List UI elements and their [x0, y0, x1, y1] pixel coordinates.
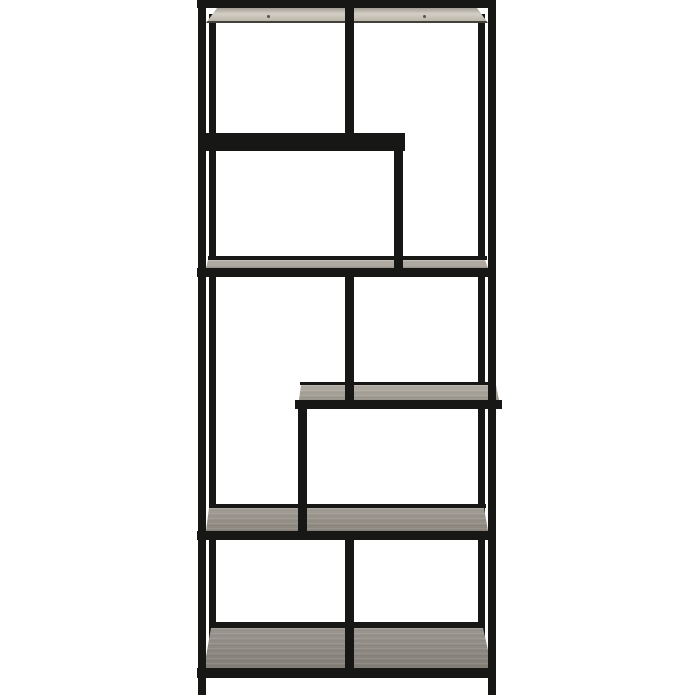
half-shelf-surface [299, 385, 499, 400]
middle-center-post [345, 277, 354, 404]
half-shelf-back-edge [300, 382, 495, 385]
second-shelf-surface [206, 260, 488, 268]
upper-left-shelf-right-post [394, 149, 403, 271]
right-rear-leg [478, 14, 485, 672]
third-shelf-surface [206, 508, 488, 531]
upper-center-post [345, 6, 354, 145]
upper-left-shelf-frame [202, 133, 405, 151]
second-shelf-back-edge [208, 256, 487, 260]
screw-head-left [267, 15, 270, 18]
half-shelf-left-post [298, 409, 307, 536]
left-rear-leg [209, 14, 216, 672]
half-shelf-front-bar [295, 400, 502, 409]
screw-head-right [423, 15, 426, 18]
lower-center-post [345, 540, 354, 671]
second-shelf-front-bar [197, 268, 496, 277]
right-front-leg [488, 5, 496, 695]
product-photo [0, 0, 700, 700]
left-front-leg [198, 5, 206, 695]
third-shelf-front-bar [197, 531, 496, 540]
third-shelf-back-edge [209, 504, 486, 508]
